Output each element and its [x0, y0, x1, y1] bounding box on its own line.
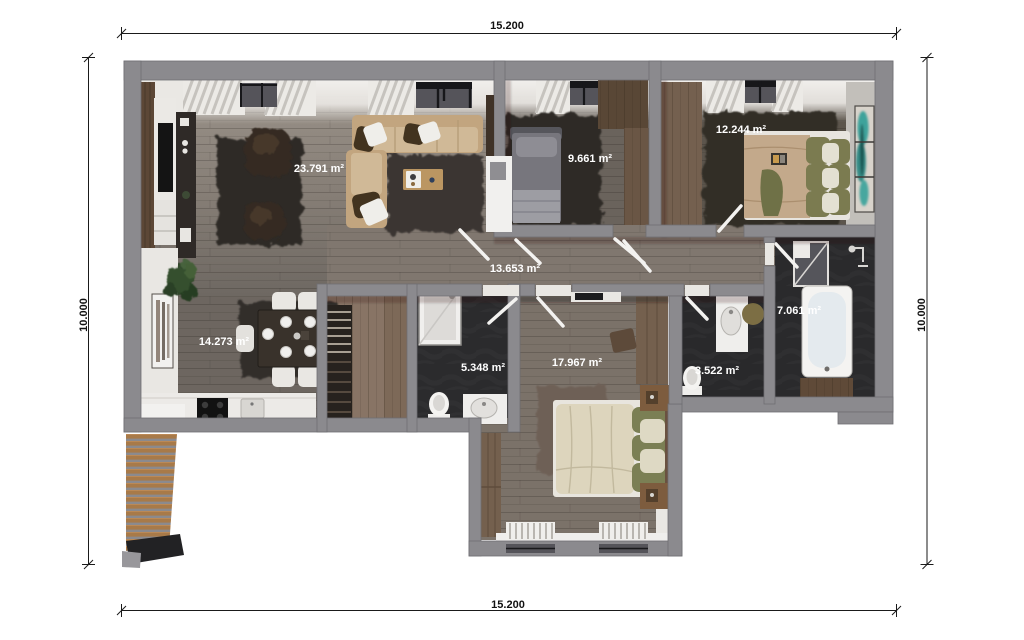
svg-text:9.661 m²: 9.661 m²	[568, 153, 612, 165]
svg-text:17.967 m²: 17.967 m²	[552, 357, 602, 369]
svg-text:10.000: 10.000	[78, 298, 90, 332]
svg-text:15.200: 15.200	[491, 599, 525, 611]
svg-text:13.653 m²: 13.653 m²	[490, 263, 540, 275]
svg-text:7.061 m²: 7.061 m²	[777, 305, 821, 317]
svg-text:12.244 m²: 12.244 m²	[716, 124, 766, 136]
svg-text:3.522 m²: 3.522 m²	[695, 365, 739, 377]
svg-text:14.273 m²: 14.273 m²	[199, 336, 249, 348]
svg-text:15.200: 15.200	[490, 20, 524, 32]
svg-text:10.000: 10.000	[916, 298, 928, 332]
svg-text:5.348 m²: 5.348 m²	[461, 362, 505, 374]
svg-text:23.791 m²: 23.791 m²	[294, 163, 344, 175]
